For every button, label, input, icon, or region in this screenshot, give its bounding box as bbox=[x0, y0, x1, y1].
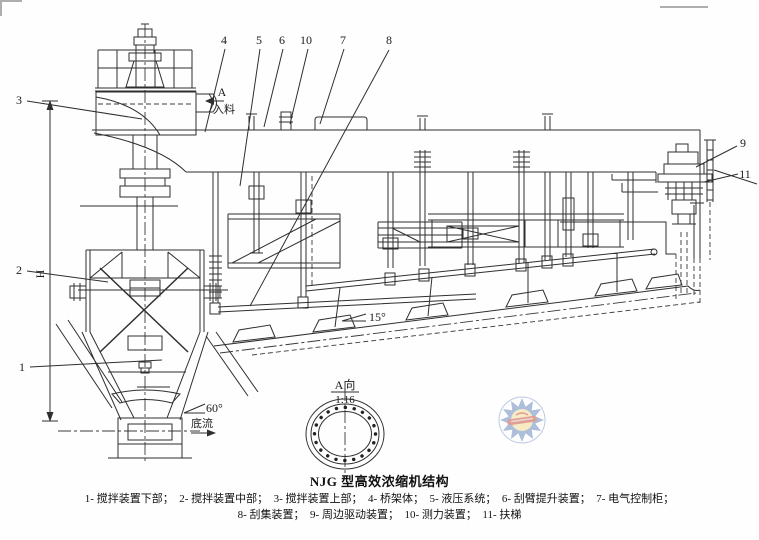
thickener-sectional-drawing: H 1 2 3 4 5 6 10 7 8 9 11 bbox=[0, 0, 759, 540]
callout-1: 1 bbox=[19, 360, 25, 374]
ladder bbox=[704, 140, 757, 260]
callout-8: 8 bbox=[386, 33, 392, 47]
bridge-beam bbox=[92, 112, 700, 192]
scraper-arms bbox=[218, 249, 657, 327]
feed-label: 入料 bbox=[213, 102, 235, 116]
suspension-rods bbox=[209, 150, 633, 314]
cone-angle-label: 60° bbox=[206, 401, 223, 415]
floor-angle-label: 15° bbox=[369, 310, 386, 324]
tank-right-wall bbox=[560, 183, 704, 306]
callout-3: 3 bbox=[16, 93, 22, 107]
scan-border-marks bbox=[1, 1, 708, 16]
callout-2: 2 bbox=[16, 263, 22, 277]
callout-5: 5 bbox=[256, 33, 262, 47]
drawing-title: NJG 型高效浓缩机结构 bbox=[0, 471, 759, 490]
cone-angle-annotation: 60° 底流 bbox=[184, 401, 223, 437]
platform-railing bbox=[95, 50, 196, 91]
cone-and-discharge bbox=[56, 320, 258, 458]
height-dimension: H bbox=[33, 100, 58, 422]
feed-box bbox=[96, 92, 217, 135]
callout-7: 7 bbox=[340, 33, 346, 47]
callout-6: 6 bbox=[279, 33, 285, 47]
legend-line-1: 1- 搅拌装置下部； 2- 搅拌装置中部； 3- 搅拌装置上部； 4- 桥架体；… bbox=[0, 490, 759, 506]
sloped-floor bbox=[214, 286, 700, 355]
callout-4: 4 bbox=[221, 33, 227, 47]
floor-angle-annotation: 15° bbox=[342, 310, 386, 324]
underflow-label: 底流 bbox=[191, 416, 213, 430]
watermark-logo bbox=[499, 397, 545, 443]
callout-10: 10 bbox=[300, 33, 312, 47]
detail-view-title: A向 bbox=[335, 377, 356, 392]
callout-9: 9 bbox=[740, 136, 746, 150]
peripheral-drive bbox=[658, 144, 712, 224]
view-letter-label: A bbox=[218, 85, 227, 99]
engineering-drawing-page: H 1 2 3 4 5 6 10 7 8 9 11 bbox=[0, 0, 759, 540]
upper-agitator-column bbox=[80, 135, 178, 250]
legend-line-2: 8- 刮集装置； 9- 周边驱动装置； 10- 测力装置； 11- 扶梯 bbox=[0, 506, 759, 522]
